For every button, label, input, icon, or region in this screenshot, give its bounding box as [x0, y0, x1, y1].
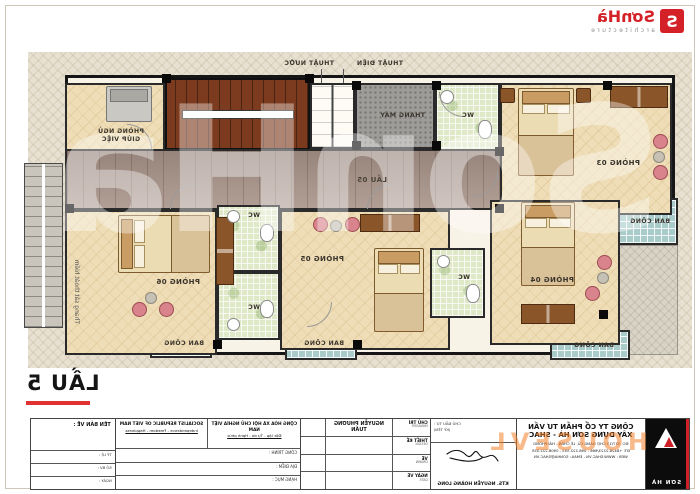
drawing-name-label: TÊN BẢN VẼ :	[31, 419, 115, 451]
table-icon	[330, 220, 342, 232]
pillow-icon	[400, 264, 420, 274]
sign-hint: (KÝ TÊN)	[434, 427, 516, 433]
motto-english: SOCIALIST REPUBLIC OF VIET NAM Independe…	[116, 419, 208, 448]
balcony-label: BAN CÔNG	[304, 340, 344, 347]
technical-shaft	[310, 83, 355, 149]
bed-headboard	[378, 251, 420, 264]
column-marker	[599, 310, 608, 319]
floor-title: LẦU 5	[26, 371, 100, 395]
brand-tagline: architecture	[589, 27, 655, 34]
toilet-icon	[260, 300, 274, 318]
wc-label: WC	[248, 212, 260, 219]
project-row-label: CÔNG TRÌNH :	[116, 449, 300, 463]
staff-label-en: DESIGN	[395, 443, 428, 447]
staircase	[165, 78, 310, 150]
company-phone: ĐT: +8428.2223/666 - 098.222.555 - 0908.…	[519, 449, 644, 454]
column-marker	[432, 141, 441, 150]
column-marker	[162, 74, 171, 83]
wardrobe-icon	[216, 217, 234, 285]
sink-icon	[227, 210, 240, 223]
leader-line	[321, 69, 322, 83]
column-marker	[603, 81, 612, 90]
fire-escape-label: Thang sắt thoát hiểm	[73, 164, 80, 324]
toilet-icon	[466, 284, 480, 303]
bed-icon	[106, 86, 152, 122]
bed-icon	[518, 88, 574, 176]
drawing-name-cell: TÊN BẢN VẼ : TỶ LỆ : SỐ BV : NGÀY :	[31, 419, 115, 489]
floor-title-underline	[26, 401, 90, 405]
wc-label: WC	[248, 304, 260, 311]
staff-label: CHỦ TRÌ MANAGER	[392, 419, 430, 436]
motto-header: CỘNG HÒA XÃ HỘI CHỦ NGHĨA VIỆT NAM Độc l…	[116, 419, 300, 449]
drawing-sheet: S SơnHà architecture Thang sắt thoát hiể…	[0, 0, 700, 494]
bed-blanket	[171, 215, 210, 273]
table-icon	[597, 272, 609, 284]
maid-room-label-line1: PHÒNG NGỦ	[98, 128, 144, 136]
bed-headboard	[121, 219, 133, 269]
pillow-icon	[134, 220, 145, 242]
column-marker	[352, 141, 361, 150]
nightstand-icon	[576, 88, 591, 103]
staff-label: THIẾT KẾ DESIGN	[392, 437, 430, 454]
signature-icon	[444, 445, 502, 465]
corridor-label: LẦU 05	[357, 176, 387, 184]
balcony-label: BAN CÔNG	[164, 340, 204, 347]
info-row-label: SỐ BV :	[31, 464, 115, 477]
bed-headboard	[110, 89, 148, 102]
toilet-icon	[478, 120, 492, 139]
table-icon	[145, 292, 157, 304]
staff-row: CHỦ TRÌ MANAGER NGUYỄN PHƯƠNG TUẤN	[301, 419, 430, 437]
pillow-icon	[525, 218, 547, 228]
table-icon	[653, 151, 665, 163]
info-row-label: TỶ LỆ :	[31, 451, 115, 464]
staff-signature-box	[301, 437, 325, 454]
column-marker	[353, 340, 362, 349]
staff-label-en: DRAWN	[395, 461, 428, 465]
balcony-label: BAN CÔNG	[630, 218, 670, 225]
staff-name	[325, 455, 392, 472]
nightstand-icon	[500, 88, 515, 103]
company-logo-caption: SƠN HÀ	[646, 480, 686, 486]
pillow-icon	[547, 104, 570, 114]
staff-name: NGUYỄN PHƯƠNG TUẤN	[325, 419, 392, 436]
staff-name	[325, 472, 392, 489]
signature-cell: CHỦ ĐẦU TƯ : (KÝ TÊN) KTS. NGUYỄN HOÀNG …	[430, 419, 516, 489]
staff-name	[325, 437, 392, 454]
sink-icon	[437, 255, 450, 268]
motto-vietnamese: CỘNG HÒA XÃ HỘI CHỦ NGHĨA VIỆT NAM Độc l…	[207, 419, 300, 448]
pillow-icon	[522, 104, 545, 114]
room-05-label: PHÒNG 05	[300, 255, 344, 263]
info-row-label: NGÀY :	[31, 477, 115, 489]
chair-icon	[159, 302, 174, 317]
company-info-cell: CÔNG TY CỔ PHẦN TƯ VẤN XÂY DỰNG SƠN HÀ -…	[516, 419, 646, 489]
maid-room-label: PHÒNG NGỦ GIÚP VIỆC	[98, 128, 144, 144]
leader-line	[343, 69, 344, 83]
company-name-line2: XÂY DỰNG SƠN HÀ - SHAC	[519, 431, 644, 439]
brand-mark-icon: S	[660, 9, 684, 33]
pillow-icon	[549, 218, 571, 228]
room-06-label: PHÒNG 06	[156, 278, 200, 286]
motto-en-line2: Independence - Freedom - Happiness	[116, 428, 208, 434]
staff-label: NGÀY VẼ DATE	[392, 472, 430, 489]
wc-label: WC	[458, 274, 470, 281]
pillow-icon	[378, 264, 398, 274]
motto-vn-line1: CỘNG HÒA XÃ HỘI CHỦ NGHĨA VIỆT NAM	[208, 422, 300, 433]
chair-icon	[653, 134, 668, 149]
stair-rail	[182, 110, 294, 119]
chair-icon	[345, 217, 360, 232]
staff-row: THIẾT KẾ DESIGN	[301, 437, 430, 455]
staff-label-en: MANAGER	[395, 425, 428, 429]
staff-row: VẼ DRAWN	[301, 455, 430, 473]
chair-icon	[132, 302, 147, 317]
column-marker	[495, 204, 504, 213]
signature-name: KTS. NGUYỄN HOÀNG LONG	[431, 482, 516, 487]
wardrobe-icon	[521, 304, 575, 324]
room-04-label: PHÒNG 04	[530, 276, 574, 284]
motto-cell: CỘNG HÒA XÃ HỘI CHỦ NGHĨA VIỆT NAM Độc l…	[115, 419, 300, 489]
sink-icon	[227, 318, 240, 331]
staff-signature-box	[301, 472, 325, 489]
chair-icon	[597, 255, 612, 270]
shaft-water-label: THUẬT NƯỚC	[284, 60, 334, 67]
column-marker	[213, 340, 222, 349]
wc-label: WC	[462, 112, 474, 119]
wardrobe-icon	[360, 214, 420, 232]
balcony-label: BAN CÔNG	[574, 342, 614, 349]
column-marker	[305, 74, 314, 83]
motto-en-line1: SOCIALIST REPUBLIC OF VIET NAM	[116, 422, 208, 428]
bed-icon	[374, 248, 424, 332]
staff-label: VẼ DRAWN	[392, 455, 430, 472]
staff-row: NGÀY VẼ DATE	[301, 472, 430, 489]
maid-room-label-line2: GIÚP VIỆC	[98, 136, 144, 144]
bed-headboard	[522, 91, 570, 104]
bed-icon	[118, 215, 210, 273]
staff-signature-box	[301, 419, 325, 436]
title-block: SƠN HÀ CÔNG TY CỔ PHẦN TƯ VẤN XÂY DỰNG S…	[30, 418, 690, 490]
chair-icon	[313, 217, 328, 232]
staff-table: CHỦ TRÌ MANAGER NGUYỄN PHƯƠNG TUẤN THIẾT…	[300, 419, 430, 489]
chair-icon	[585, 286, 600, 301]
bed-icon	[521, 202, 575, 286]
room-03-label: PHÒNG 03	[596, 159, 640, 167]
project-row-label: HẠNG MỤC :	[116, 476, 300, 489]
chair-icon	[653, 165, 668, 180]
floor-plan: Thang sắt thoát hiểm	[28, 52, 692, 368]
motto-vn-line2: Độc lập - Tự do - Hạnh phúc	[208, 433, 300, 439]
signature-header: CHỦ ĐẦU TƯ : (KÝ TÊN)	[431, 419, 516, 443]
column-marker	[432, 81, 441, 90]
pillow-icon	[134, 245, 145, 267]
fire-escape-stair	[24, 163, 63, 328]
company-web: WEB : WWW.SHAC.VN - EMAIL: SONHA@SHAC.VN	[519, 455, 644, 460]
bed-blanket	[374, 293, 424, 332]
column-marker	[495, 147, 504, 156]
brand-name: SơnHà	[589, 9, 655, 25]
brand-logo: S SơnHà architecture	[589, 9, 684, 34]
staff-label-en: DATE	[395, 479, 428, 483]
corridor	[65, 149, 502, 210]
bed-blanket	[518, 135, 574, 176]
project-row-label: ĐỊA ĐIỂM :	[116, 463, 300, 477]
company-logo-cell: SƠN HÀ	[645, 419, 689, 489]
column-marker	[352, 81, 361, 90]
toilet-icon	[260, 224, 274, 242]
company-address: ĐC: 327/13 CHỢ HÀNG CŨ, LÊ CHÂN - HẢI PH…	[519, 442, 644, 447]
brand-text: SơnHà architecture	[589, 9, 655, 34]
staff-signature-box	[301, 455, 325, 472]
shaft-electric-label: THUẬT ĐIỆN	[357, 60, 403, 67]
wardrobe-icon	[610, 86, 668, 108]
mountain-logo-accent-icon	[664, 437, 674, 447]
bed-headboard	[525, 205, 571, 218]
elevator-label: THANG MÁY	[380, 112, 425, 119]
